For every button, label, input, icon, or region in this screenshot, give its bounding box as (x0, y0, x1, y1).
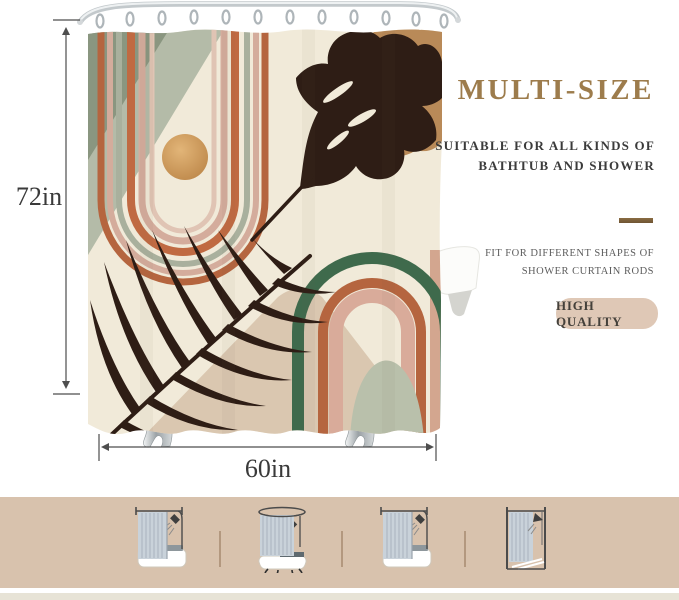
curtain-hooks (97, 11, 448, 28)
width-dimension-label: 60in (99, 454, 437, 484)
high-quality-badge: HIGH QUALITY (556, 298, 658, 329)
subtitle-line-1: SUITABLE FOR ALL KINDS OF (435, 136, 655, 156)
rod-types-strip (0, 497, 679, 588)
subtitle-text: SUITABLE FOR ALL KINDS OF BATHTUB AND SH… (435, 136, 655, 176)
footer-divider (464, 531, 466, 567)
note-line-2: SHOWER CURTAIN RODS (485, 263, 654, 281)
straight-rod-bathtub-icon (131, 503, 187, 573)
shower-rod-icon (77, 3, 461, 25)
note-text: FIT FOR DIFFERENT SHAPES OF SHOWER CURTA… (485, 245, 654, 281)
subtitle-line-2: BATHTUB AND SHOWER (435, 156, 655, 176)
gold-divider (619, 218, 653, 223)
bottom-band (0, 593, 679, 600)
multi-size-title: MULTI-SIZE (458, 74, 654, 107)
product-image: 72in 60in MULTI-SIZE SUITABLE FOR ALL KI… (0, 0, 679, 600)
bathtub-rim (437, 247, 479, 316)
height-dimension-label: 72in (13, 182, 65, 212)
footer-divider (341, 531, 343, 567)
footer-divider (219, 531, 221, 567)
sun-circle (162, 134, 208, 180)
curtain-fabric (80, 0, 463, 450)
shower-stall-icon (498, 503, 554, 573)
oval-rod-clawfoot-tub-icon (254, 503, 310, 573)
straight-rod-bathtub-icon (376, 503, 432, 573)
note-line-1: FIT FOR DIFFERENT SHAPES OF (485, 245, 654, 263)
